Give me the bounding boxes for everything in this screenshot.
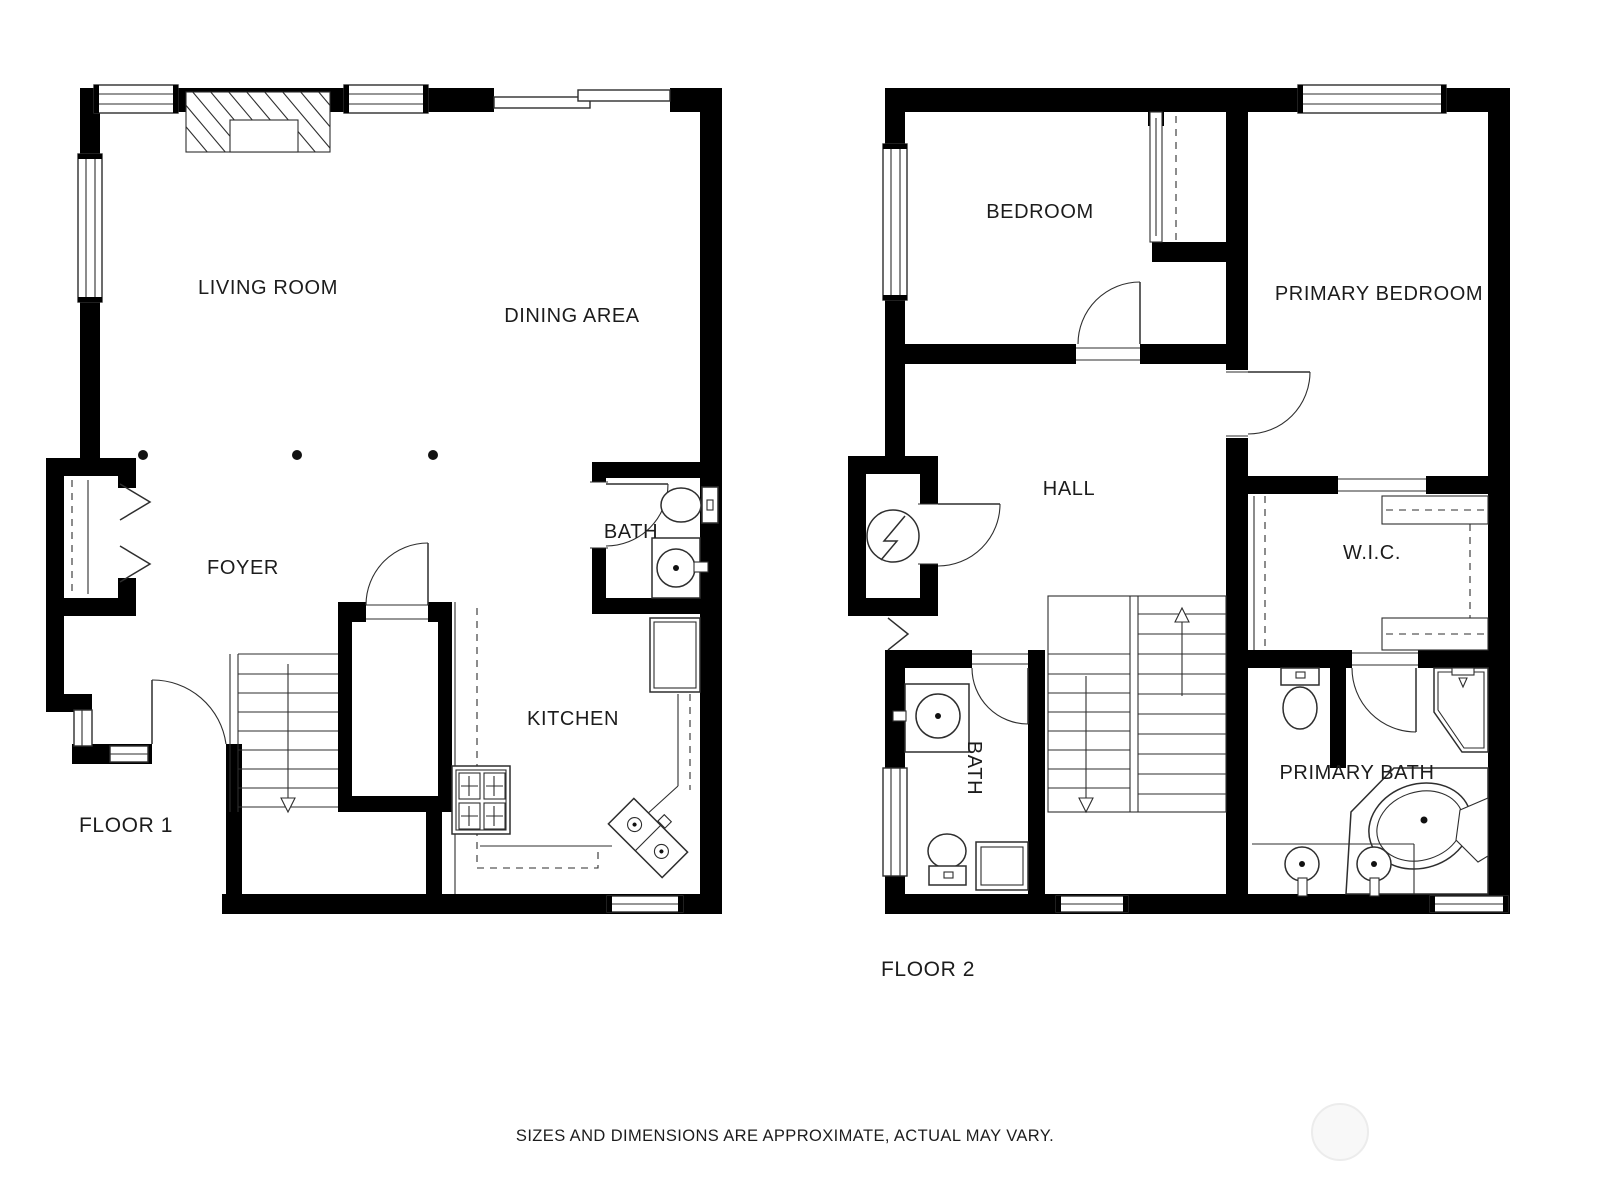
closet-shelf-lines — [72, 480, 88, 594]
utility-closet-door-icon — [918, 504, 1000, 566]
floorplan-canvas: LIVING ROOM DINING AREA FOYER BATH KITCH… — [0, 0, 1600, 1200]
floor1-plan: LIVING ROOM DINING AREA FOYER BATH KITCH… — [46, 84, 722, 914]
entry-door-icon — [152, 680, 226, 744]
window-icon — [344, 85, 428, 113]
stairs-up-arrow-icon — [1175, 608, 1189, 696]
water-heater-icon — [867, 510, 919, 562]
floor2-bath-fixtures — [893, 684, 1028, 890]
window-icon — [607, 896, 683, 912]
floorplan-image: LIVING ROOM DINING AREA FOYER BATH KITCH… — [0, 0, 1600, 1200]
toilet-icon — [661, 487, 718, 523]
floor2-stairs — [1048, 596, 1226, 812]
watermark-circle — [1312, 1104, 1368, 1160]
floor2-plan: BEDROOM PRIMARY BEDROOM HALL W.I.C. BATH… — [848, 85, 1510, 981]
window-icon — [1430, 896, 1508, 912]
floor1-doors — [72, 480, 668, 744]
floor2-doors — [888, 112, 1426, 732]
room-label-hall: HALL — [1043, 478, 1095, 500]
floor1-title: FLOOR 1 — [79, 814, 173, 837]
range-icon — [452, 766, 510, 834]
bifold-closet-door-icon — [120, 484, 150, 582]
primary-bedroom-door-icon — [1226, 370, 1310, 438]
room-label-primary-bath: PRIMARY BATH — [1279, 762, 1434, 784]
window-icon — [883, 144, 907, 300]
bedroom-door-icon — [1076, 282, 1140, 360]
floor1-labels: LIVING ROOM DINING AREA FOYER BATH KITCH… — [79, 277, 658, 837]
window-icon — [94, 85, 178, 113]
room-label-bath-1: BATH — [604, 521, 658, 543]
window-icon — [78, 154, 102, 302]
room-label-bath-2: BATH — [963, 741, 985, 795]
floor1-columns — [138, 450, 438, 460]
window-icon — [110, 746, 148, 762]
room-label-foyer: FOYER — [207, 557, 279, 579]
wic-opening — [1338, 479, 1426, 491]
window-icon — [74, 710, 92, 746]
floor1-kitchen-fixtures — [452, 602, 700, 894]
room-label-dining-area: DINING AREA — [504, 305, 640, 327]
bathroom-sink-icon — [893, 684, 969, 752]
corner-shower-icon — [1434, 668, 1488, 752]
room-label-kitchen: KITCHEN — [527, 708, 619, 730]
stairs-down-arrow-icon — [281, 664, 295, 812]
room-label-wic: W.I.C. — [1343, 542, 1401, 564]
window-icon — [883, 768, 907, 876]
primary-bath-door-icon — [1352, 653, 1418, 732]
shower-icon — [976, 842, 1028, 890]
hall-bath-door-icon — [972, 654, 1028, 724]
toilet-icon — [928, 834, 966, 885]
corner-sink-icon — [608, 791, 694, 877]
room-label-bedroom: BEDROOM — [986, 201, 1094, 223]
wic-shelving — [1254, 496, 1488, 650]
sliding-door-icon — [494, 90, 670, 108]
attic-access-door-icon — [888, 618, 908, 650]
floor2-title: FLOOR 2 — [881, 958, 975, 981]
room-label-living-room: LIVING ROOM — [198, 277, 338, 299]
floor1-stairs-down — [230, 654, 338, 812]
refrigerator-icon — [650, 618, 700, 692]
window-icon — [1056, 896, 1128, 912]
disclaimer-text: SIZES AND DIMENSIONS ARE APPROXIMATE, AC… — [516, 1127, 1054, 1145]
toilet-icon — [1281, 668, 1319, 729]
room-label-primary-bedroom: PRIMARY BEDROOM — [1275, 283, 1483, 305]
bathroom-sink-icon — [652, 538, 708, 598]
stairs-down-arrow-icon — [1079, 676, 1093, 812]
pantry-door-icon — [366, 543, 428, 619]
window-icon — [1298, 85, 1446, 113]
closet-sliding-door-icon — [1150, 112, 1176, 242]
